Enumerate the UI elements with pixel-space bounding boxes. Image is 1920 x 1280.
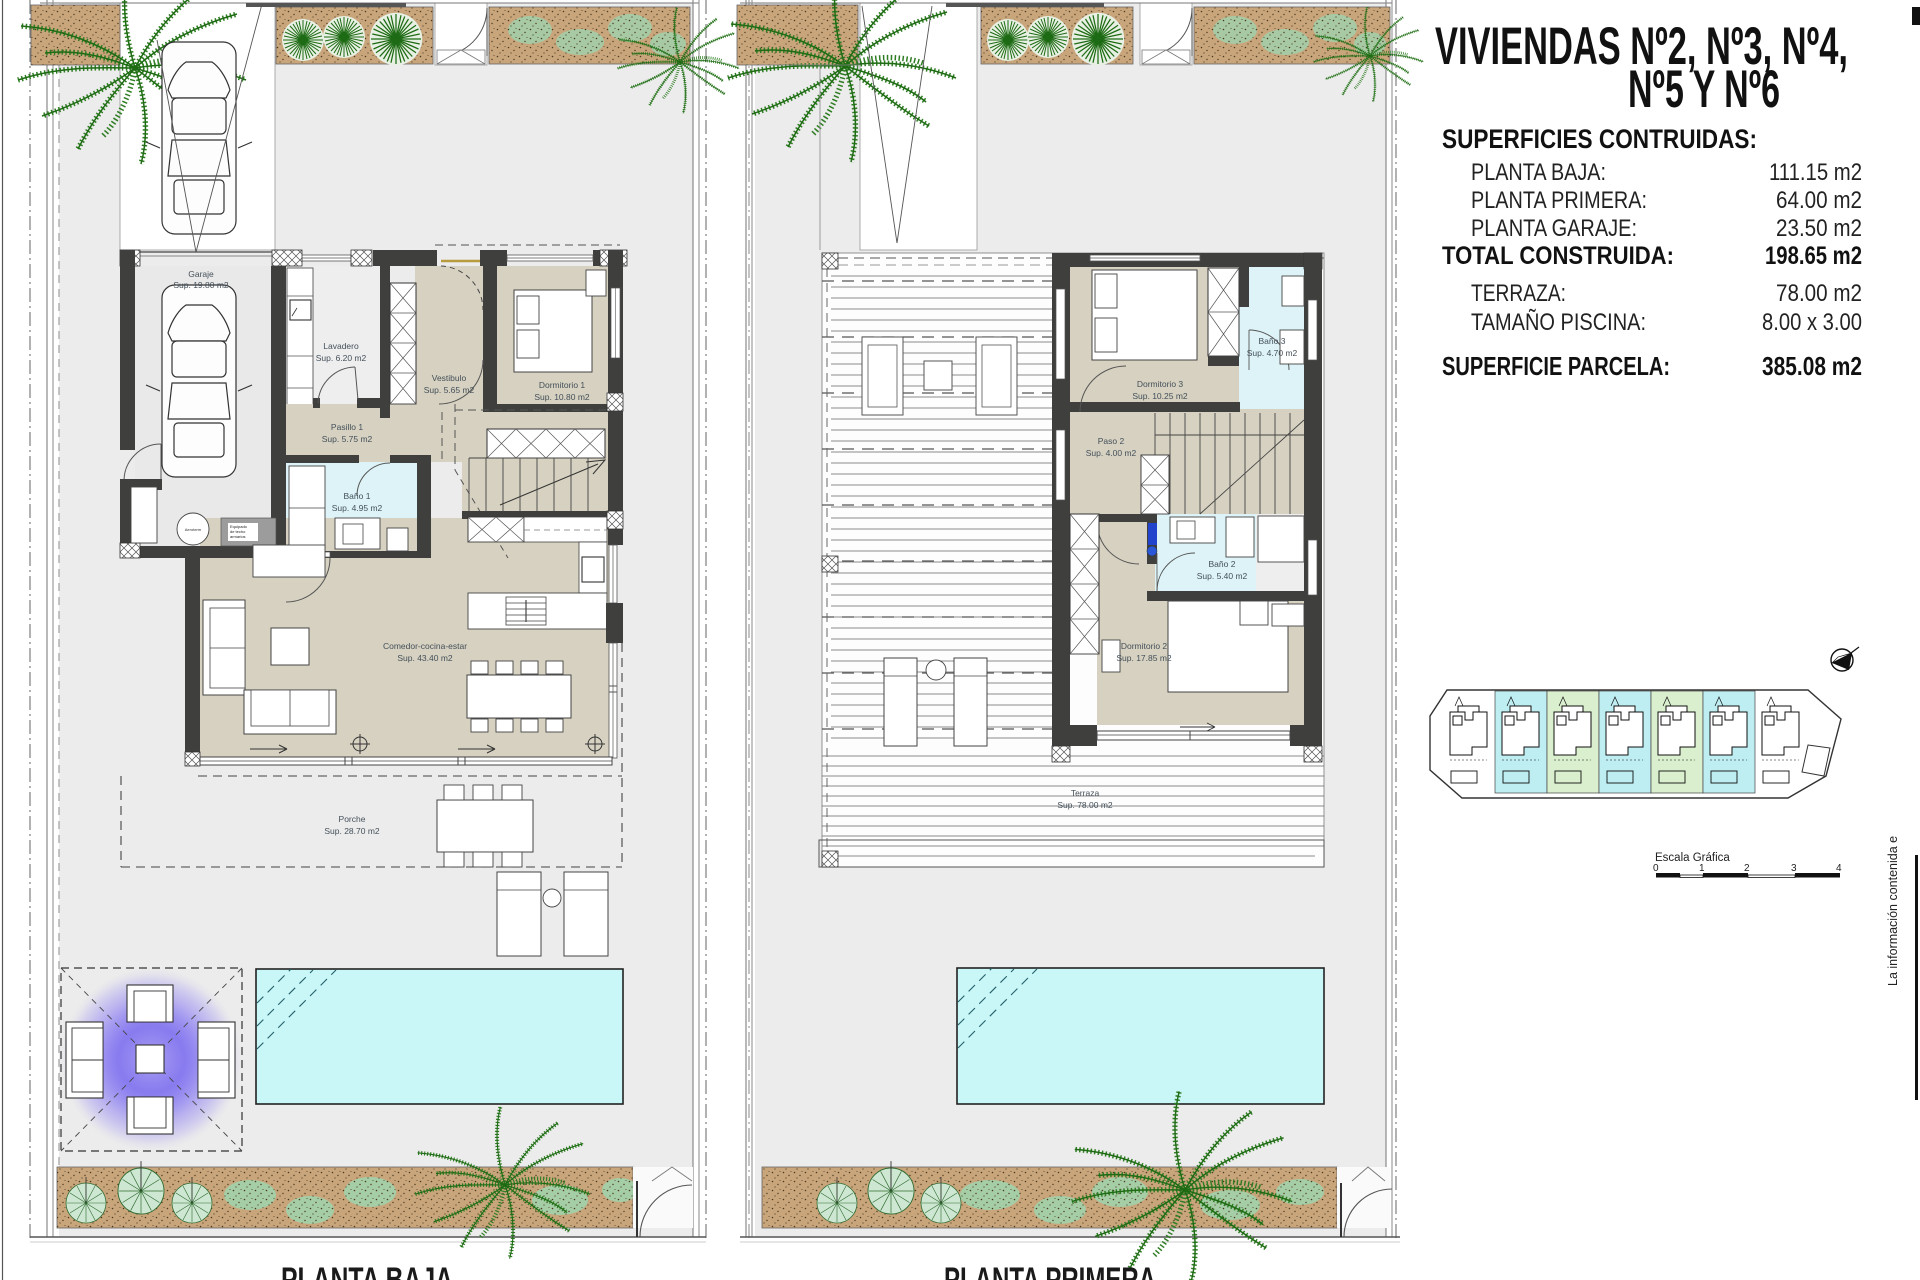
- svg-text:Sup. 17.85 m2: Sup. 17.85 m2: [1116, 653, 1172, 663]
- svg-text:La información contenida e: La información contenida e: [1886, 836, 1900, 986]
- svg-text:Escala Gráfica: Escala Gráfica: [1655, 852, 1730, 864]
- svg-text:Dormitorio 2: Dormitorio 2: [1121, 641, 1168, 651]
- svg-text:Lavadero: Lavadero: [323, 341, 359, 351]
- svg-text:PLANTA PRIMERA:: PLANTA PRIMERA:: [1471, 187, 1647, 214]
- svg-text:TOTAL CONSTRUIDA:: TOTAL CONSTRUIDA:: [1442, 242, 1674, 270]
- svg-text:Sup. 4.70 m2: Sup. 4.70 m2: [1247, 348, 1298, 358]
- svg-text:SUPERFICIES CONTRUIDAS:: SUPERFICIES CONTRUIDAS:: [1442, 124, 1757, 154]
- svg-text:PLANTA PRIMERA: PLANTA PRIMERA: [944, 1261, 1156, 1280]
- svg-text:1: 1: [1699, 863, 1705, 874]
- svg-text:Sup. 4.95 m2: Sup. 4.95 m2: [332, 503, 383, 513]
- svg-text:Sup. 78.00 m2: Sup. 78.00 m2: [1057, 800, 1113, 810]
- svg-text:23.50 m2: 23.50 m2: [1776, 215, 1862, 242]
- svg-text:78.00 m2: 78.00 m2: [1776, 280, 1862, 307]
- svg-text:111.15 m2: 111.15 m2: [1769, 159, 1862, 186]
- svg-text:Baño 1: Baño 1: [344, 491, 371, 501]
- svg-text:Sup. 10.25 m2: Sup. 10.25 m2: [1132, 391, 1188, 401]
- svg-text:Garaje: Garaje: [188, 269, 214, 279]
- svg-text:Sup. 43.40 m2: Sup. 43.40 m2: [397, 653, 453, 663]
- svg-text:Nº5 Y Nº6: Nº5 Y Nº6: [1628, 60, 1780, 119]
- svg-text:Sup. 10.80 m2: Sup. 10.80 m2: [534, 392, 590, 402]
- svg-text:Sup. 6.20 m2: Sup. 6.20 m2: [316, 353, 367, 363]
- svg-text:8.00 x 3.00: 8.00 x 3.00: [1762, 309, 1862, 336]
- svg-text:Pasillo 1: Pasillo 1: [331, 422, 363, 432]
- svg-text:SUPERFICIE PARCELA:: SUPERFICIE PARCELA:: [1442, 351, 1670, 381]
- svg-text:Baño 2: Baño 2: [1209, 559, 1236, 569]
- svg-text:Sup. 5.40 m2: Sup. 5.40 m2: [1197, 571, 1248, 581]
- svg-text:armarios: armarios: [230, 534, 246, 539]
- svg-text:Aeroterm: Aeroterm: [185, 527, 202, 532]
- svg-text:Comedor-cocina-estar: Comedor-cocina-estar: [383, 641, 467, 651]
- svg-text:Porche: Porche: [339, 814, 366, 824]
- svg-text:Sup. 28.70 m2: Sup. 28.70 m2: [324, 826, 380, 836]
- svg-text:Paso 2: Paso 2: [1098, 436, 1125, 446]
- svg-text:PLANTA BAJA:: PLANTA BAJA:: [1471, 159, 1606, 186]
- svg-text:Sup. 5.65 m2: Sup. 5.65 m2: [424, 385, 475, 395]
- svg-text:TERRAZA:: TERRAZA:: [1471, 280, 1566, 307]
- svg-text:0: 0: [1653, 863, 1659, 874]
- svg-text:Sup. 5.75 m2: Sup. 5.75 m2: [322, 434, 373, 444]
- svg-text:Baño 3: Baño 3: [1259, 336, 1286, 346]
- svg-text:198.65 m2: 198.65 m2: [1765, 242, 1862, 270]
- svg-text:2: 2: [1744, 863, 1750, 874]
- svg-text:PLANTA GARAJE:: PLANTA GARAJE:: [1471, 215, 1637, 242]
- svg-text:Dormitorio 1: Dormitorio 1: [539, 380, 586, 390]
- svg-text:Sup. 4.00 m2: Sup. 4.00 m2: [1086, 448, 1137, 458]
- svg-text:Vestibulo: Vestibulo: [432, 373, 467, 383]
- svg-text:Dormitorio 3: Dormitorio 3: [1137, 379, 1184, 389]
- svg-text:TAMAÑO PISCINA:: TAMAÑO PISCINA:: [1471, 309, 1646, 336]
- svg-text:3: 3: [1791, 863, 1797, 874]
- svg-text:Terraza: Terraza: [1071, 788, 1100, 798]
- svg-text:385.08 m2: 385.08 m2: [1762, 351, 1862, 381]
- svg-text:PLANTA BAJA: PLANTA BAJA: [281, 1261, 453, 1280]
- svg-text:4: 4: [1836, 863, 1842, 874]
- svg-text:Sup. 19.80 m2: Sup. 19.80 m2: [173, 280, 229, 290]
- svg-text:64.00 m2: 64.00 m2: [1776, 187, 1862, 214]
